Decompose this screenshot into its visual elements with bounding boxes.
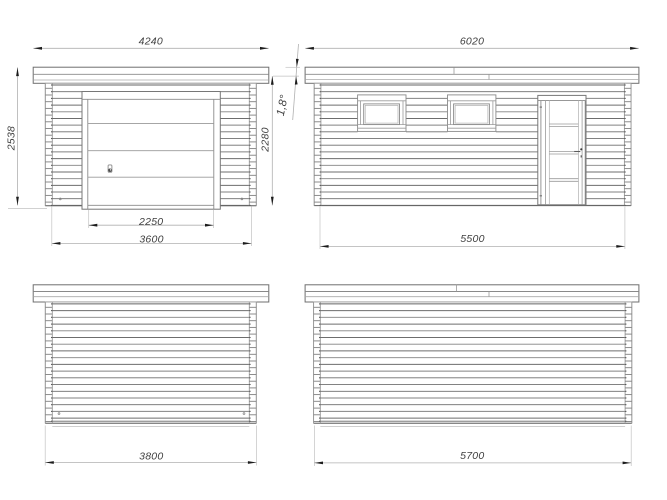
svg-text:5700: 5700 xyxy=(460,450,484,462)
svg-text:3800: 3800 xyxy=(139,450,163,462)
svg-text:3600: 3600 xyxy=(139,234,163,246)
svg-text:5500: 5500 xyxy=(460,233,484,245)
svg-text:6020: 6020 xyxy=(460,36,484,48)
svg-text:2250: 2250 xyxy=(138,216,163,228)
svg-text:2538: 2538 xyxy=(6,126,18,151)
svg-text:4240: 4240 xyxy=(139,36,163,48)
svg-text:2280: 2280 xyxy=(260,127,272,152)
